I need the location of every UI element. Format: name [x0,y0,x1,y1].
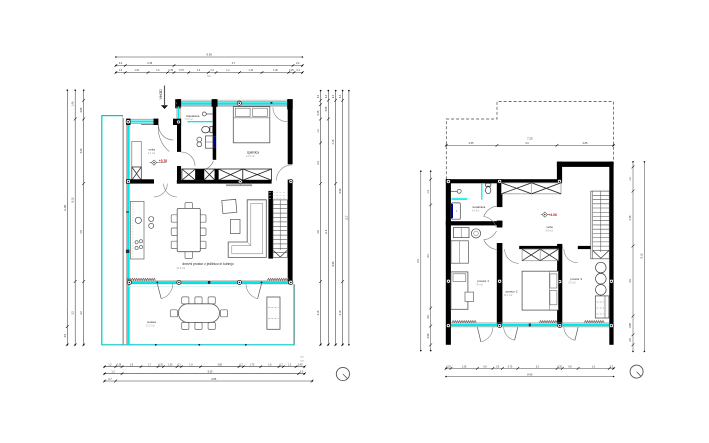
svg-text:1.15: 1.15 [134,70,139,72]
svg-text:0.25: 0.25 [557,366,562,368]
svg-text:spalnica: spalnica [247,150,259,154]
svg-text:0.35: 0.35 [169,70,174,72]
svg-text:11.85: 11.85 [64,204,67,210]
svg-text:+4.06: +4.06 [549,213,558,217]
svg-text:0.25: 0.25 [446,366,451,368]
svg-text:2.55: 2.55 [469,142,474,145]
svg-text:11.3: 11.3 [325,229,328,234]
svg-text:+0.76: +0.76 [159,159,168,163]
svg-text:1.15: 1.15 [249,70,254,72]
svg-text:0.75: 0.75 [179,70,184,72]
svg-text:0.95: 0.95 [80,107,83,112]
svg-text:7.25: 7.25 [527,137,533,141]
svg-text:0.95: 0.95 [325,106,328,111]
svg-text:prostor 3: prostor 3 [570,277,582,281]
svg-text:9.8 m2: 9.8 m2 [546,230,554,233]
svg-text:4.7: 4.7 [232,62,236,65]
svg-text:1.45: 1.45 [72,101,75,106]
svg-text:14.9 m2: 14.9 m2 [246,155,255,158]
svg-text:1.75: 1.75 [250,365,255,367]
svg-text:44.9 m2: 44.9 m2 [177,267,186,270]
svg-text:4.1 m2: 4.1 m2 [148,152,156,155]
svg-text:9.85: 9.85 [211,378,216,381]
svg-text:2.85: 2.85 [583,142,588,145]
svg-text:1.35: 1.35 [273,70,278,72]
svg-text:0.95: 0.95 [427,333,430,338]
svg-text:prostor 2: prostor 2 [506,290,518,294]
svg-text:3.0: 3.0 [525,142,529,145]
svg-text:0.4: 0.4 [119,62,123,65]
svg-text:1.35: 1.35 [462,366,467,368]
svg-text:9.35: 9.35 [208,371,213,374]
svg-text:11.4 m2: 11.4 m2 [504,294,513,297]
svg-text:0.25: 0.25 [158,365,163,367]
svg-text:12.7: 12.7 [345,215,348,220]
svg-text:3.85: 3.85 [217,365,222,367]
svg-text:veža: veža [148,147,155,151]
svg-text:9.2 m2: 9.2 m2 [568,282,576,285]
svg-text:0.75: 0.75 [508,366,513,368]
svg-text:3.25: 3.25 [80,148,83,153]
svg-text:0.45: 0.45 [298,365,303,367]
svg-text:7.8 m2: 7.8 m2 [475,283,483,286]
svg-text:terasa: terasa [147,320,156,324]
svg-text:2.45: 2.45 [147,62,152,65]
svg-text:4.6 m2: 4.6 m2 [472,209,480,212]
svg-text:9.15: 9.15 [641,253,644,258]
svg-text:0.95: 0.95 [629,323,632,328]
svg-text:8.15: 8.15 [72,197,75,202]
svg-text:0.25: 0.25 [289,70,294,72]
svg-text:4.15: 4.15 [332,139,335,144]
svg-text:0.45: 0.45 [317,110,320,115]
svg-text:0.4: 0.4 [296,62,300,65]
svg-text:1.35: 1.35 [168,365,173,367]
svg-text:9.36: 9.36 [206,53,212,57]
svg-text:5.0 m2: 5.0 m2 [185,118,193,121]
svg-text:3.15: 3.15 [339,310,342,315]
svg-text:0.35: 0.35 [117,365,122,367]
svg-text:kopalnica: kopalnica [473,205,486,209]
svg-text:prostor 1: prostor 1 [477,279,489,283]
svg-text:dnevni prostor z jedilnico in: dnevni prostor z jedilnico in kuhinjo [182,262,233,266]
svg-text:9.05: 9.05 [339,188,342,193]
svg-text:VHOD: VHOD [159,89,163,100]
svg-text:veža: veža [546,225,553,229]
svg-text:2.75: 2.75 [629,215,632,220]
svg-text:27.2 m2: 27.2 m2 [146,325,155,328]
svg-text:8.40: 8.40 [527,372,533,376]
svg-text:3.15: 3.15 [317,310,320,315]
svg-text:8.05: 8.05 [332,261,335,266]
